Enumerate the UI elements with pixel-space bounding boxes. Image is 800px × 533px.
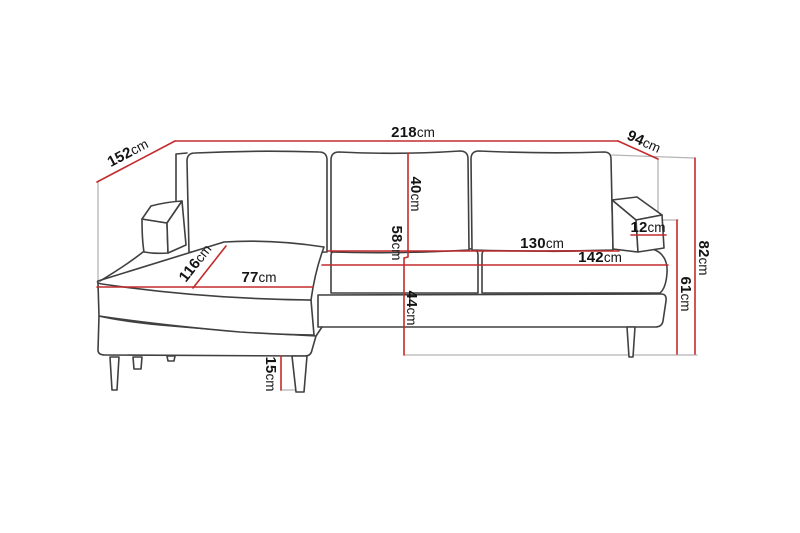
dim-label-seat-back-height: 58cm [388,225,405,260]
leg-main-front [627,327,635,357]
dim-label-seat-width: 142cm [578,249,622,266]
dim-label-leg-height: 15cm [262,356,279,391]
leg-chaise-rear-left [133,357,142,369]
diagram-canvas: 218cm 152cm 94cm 40cm 58cm 44cm 12cm 82c… [0,0,800,533]
back-cushion-left [187,151,327,253]
dim-label-chaise-seat-width: 77cm [241,269,276,286]
chaise-base-connector [316,327,322,336]
armrest-left-front-face [142,219,168,253]
leg-chaise-rear-right [167,356,175,361]
dim-label-inner-seat-width: 130cm [520,235,564,252]
dim-label-back-cushion-height: 40cm [407,176,424,211]
dim-label-armrest-height: 61cm [677,276,694,311]
dim-label-total-height: 82cm [695,240,712,275]
dim-label-total-width: 218cm [391,124,435,141]
dim-label-armrest-width: 12cm [630,219,665,236]
seat-cushion-right [482,247,667,293]
sofa-base [318,294,666,327]
leg-chaise-front-right [292,356,307,392]
dim-label-seat-height: 44cm [403,290,420,325]
sofa-dimension-diagram: 218cm 152cm 94cm 40cm 58cm 44cm 12cm 82c… [0,0,800,533]
back-left-edge [176,153,187,203]
leg-chaise-front-left [110,357,119,390]
